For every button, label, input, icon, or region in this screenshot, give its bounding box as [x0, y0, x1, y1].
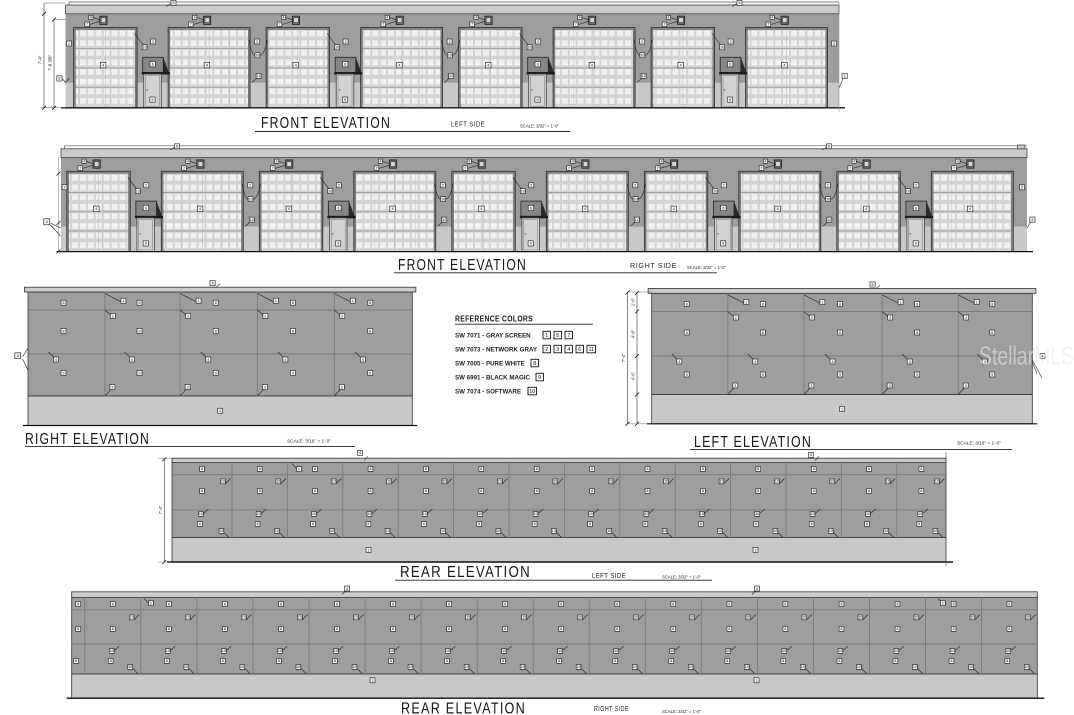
svg-text:8: 8: [166, 659, 168, 663]
svg-text:4: 4: [668, 16, 670, 20]
svg-text:8: 8: [370, 489, 372, 493]
svg-text:10: 10: [386, 529, 390, 533]
svg-text:8: 8: [110, 659, 112, 663]
svg-text:7: 7: [849, 166, 851, 170]
svg-text:10: 10: [136, 189, 140, 193]
svg-text:StellarMLS: StellarMLS: [979, 341, 1074, 371]
svg-text:8: 8: [334, 659, 336, 663]
svg-text:10: 10: [886, 480, 890, 484]
svg-text:10: 10: [811, 512, 815, 516]
svg-text:10: 10: [502, 649, 506, 653]
svg-text:4: 4: [90, 16, 92, 20]
svg-text:4: 4: [102, 63, 104, 67]
svg-text:10: 10: [884, 529, 888, 533]
svg-text:2: 2: [46, 220, 48, 224]
svg-text:4: 4: [567, 347, 570, 353]
svg-text:4: 4: [771, 16, 773, 20]
svg-text:1: 1: [219, 409, 221, 413]
svg-text:8: 8: [894, 659, 896, 663]
svg-text:9: 9: [292, 371, 294, 375]
svg-text:8: 8: [916, 331, 918, 335]
svg-text:8: 8: [139, 301, 141, 305]
svg-text:10: 10: [913, 665, 917, 669]
svg-text:8: 8: [448, 627, 450, 631]
svg-text:8: 8: [686, 302, 688, 306]
svg-text:10: 10: [644, 512, 648, 516]
svg-text:6: 6: [337, 206, 339, 210]
svg-text:2: 2: [530, 184, 532, 188]
svg-text:10: 10: [755, 512, 759, 516]
svg-text:SCALE: 3/32" = 1'-0": SCALE: 3/32" = 1'-0": [520, 124, 559, 129]
svg-text:1: 1: [372, 679, 374, 683]
svg-text:10: 10: [390, 649, 394, 653]
svg-text:6: 6: [915, 206, 917, 210]
svg-text:10: 10: [184, 665, 188, 669]
svg-text:10: 10: [773, 529, 777, 533]
svg-text:4: 4: [362, 358, 364, 362]
svg-text:7: 7: [464, 166, 466, 170]
svg-text:REAR ELEVATION: REAR ELEVATION: [400, 564, 531, 581]
svg-text:10: 10: [577, 665, 581, 669]
svg-text:7: 7: [664, 23, 666, 27]
svg-text:2: 2: [68, 42, 70, 46]
svg-text:8: 8: [897, 603, 899, 607]
svg-text:10: 10: [726, 649, 730, 653]
svg-text:8: 8: [312, 522, 314, 526]
svg-text:10: 10: [700, 512, 704, 516]
svg-text:4: 4: [468, 160, 470, 164]
svg-text:1: 1: [841, 407, 843, 411]
svg-text:2: 2: [249, 184, 251, 188]
svg-text:2: 2: [1021, 186, 1023, 190]
svg-text:8: 8: [425, 467, 427, 471]
svg-text:10: 10: [894, 649, 898, 653]
svg-text:3: 3: [810, 384, 812, 388]
svg-text:10: 10: [522, 616, 526, 620]
svg-text:10: 10: [529, 389, 535, 395]
svg-text:8: 8: [866, 522, 868, 526]
svg-text:10: 10: [387, 480, 391, 484]
svg-text:10: 10: [589, 512, 593, 516]
svg-text:5: 5: [173, 1, 175, 5]
svg-text:5: 5: [556, 333, 559, 339]
svg-text:8: 8: [369, 301, 371, 305]
svg-text:8: 8: [478, 522, 480, 526]
svg-text:10: 10: [906, 189, 910, 193]
svg-text:12: 12: [442, 218, 446, 222]
svg-text:4: 4: [206, 63, 208, 67]
svg-text:7: 7: [568, 166, 570, 170]
svg-text:6: 6: [722, 206, 724, 210]
svg-text:8: 8: [199, 522, 201, 526]
svg-text:10: 10: [664, 480, 668, 484]
svg-text:9: 9: [916, 373, 918, 377]
svg-text:9: 9: [839, 373, 841, 377]
svg-text:8: 8: [480, 467, 482, 471]
svg-text:10: 10: [918, 512, 922, 516]
svg-text:9: 9: [152, 98, 154, 102]
svg-text:10: 10: [633, 665, 637, 669]
svg-text:8: 8: [757, 467, 759, 471]
svg-text:4: 4: [832, 360, 834, 364]
svg-text:8: 8: [686, 331, 688, 335]
svg-text:5: 5: [212, 282, 214, 286]
svg-text:10: 10: [690, 616, 694, 620]
svg-text:8: 8: [259, 489, 261, 493]
svg-text:1: 1: [976, 300, 978, 304]
svg-text:7: 7: [272, 166, 274, 170]
svg-text:8: 8: [75, 659, 77, 663]
svg-text:10: 10: [143, 46, 147, 50]
svg-text:LEFT SIDE: LEFT SIDE: [451, 120, 485, 129]
svg-text:2: 2: [345, 40, 347, 44]
svg-text:4: 4: [346, 587, 348, 591]
svg-text:10: 10: [446, 649, 450, 653]
svg-text:8: 8: [702, 467, 704, 471]
svg-text:9: 9: [729, 98, 731, 102]
svg-text:10: 10: [933, 529, 937, 533]
svg-text:4: 4: [386, 16, 388, 20]
svg-text:10: 10: [951, 649, 955, 653]
svg-text:4: 4: [398, 63, 400, 67]
svg-text:2: 2: [641, 40, 643, 44]
svg-text:8: 8: [614, 659, 616, 663]
svg-text:8: 8: [616, 603, 618, 607]
svg-text:8: 8: [700, 522, 702, 526]
svg-text:8: 8: [533, 361, 536, 367]
svg-text:RIGHT SIDE: RIGHT SIDE: [630, 261, 677, 270]
svg-text:4: 4: [673, 207, 675, 211]
svg-text:8: 8: [784, 603, 786, 607]
svg-text:9: 9: [63, 371, 65, 375]
svg-text:8: 8: [314, 467, 316, 471]
svg-text:4: 4: [199, 207, 201, 211]
svg-text:10: 10: [330, 529, 334, 533]
svg-text:4: 4: [680, 63, 682, 67]
svg-text:8: 8: [702, 489, 704, 493]
svg-text:4: 4: [756, 587, 758, 591]
svg-text:8: 8: [390, 659, 392, 663]
svg-text:4: 4: [95, 207, 97, 211]
svg-text:4: 4: [380, 160, 382, 164]
svg-text:7'-4": 7'-4": [621, 353, 626, 362]
svg-text:8: 8: [336, 627, 338, 631]
svg-text:3: 3: [187, 385, 189, 389]
svg-text:10: 10: [578, 616, 582, 620]
svg-text:1'-6": 1'-6": [631, 297, 636, 306]
svg-text:9: 9: [538, 375, 541, 381]
svg-text:3: 3: [264, 385, 266, 389]
svg-text:8: 8: [670, 659, 672, 663]
svg-text:8: 8: [504, 603, 506, 607]
svg-text:8: 8: [589, 522, 591, 526]
svg-text:12: 12: [449, 74, 453, 78]
svg-text:3: 3: [965, 384, 967, 388]
svg-text:7'-4": 7'-4": [38, 55, 43, 64]
svg-text:2: 2: [442, 184, 444, 188]
svg-text:4: 4: [187, 160, 189, 164]
svg-text:9: 9: [139, 371, 141, 375]
svg-text:2: 2: [723, 184, 725, 188]
svg-text:7: 7: [953, 166, 955, 170]
svg-text:10: 10: [521, 189, 525, 193]
svg-text:REFERENCE COLORS: REFERENCE COLORS: [455, 315, 533, 324]
svg-text:SW 7005 - PURE WHITE: SW 7005 - PURE WHITE: [455, 361, 525, 368]
svg-text:8: 8: [644, 522, 646, 526]
svg-text:8: 8: [392, 603, 394, 607]
svg-text:10: 10: [352, 665, 356, 669]
svg-text:10: 10: [745, 665, 749, 669]
svg-text:9: 9: [991, 373, 993, 377]
svg-text:8: 8: [224, 603, 226, 607]
svg-text:1: 1: [821, 300, 823, 304]
svg-text:12: 12: [257, 74, 261, 78]
svg-text:SCALE: 3/32" = 1'-0": SCALE: 3/32" = 1'-0": [662, 709, 701, 714]
svg-text:8: 8: [222, 659, 224, 663]
svg-text:5: 5: [739, 1, 741, 5]
svg-text:8: 8: [369, 329, 371, 333]
svg-text:1: 1: [150, 602, 152, 606]
svg-text:8: 8: [1008, 603, 1010, 607]
svg-text:SW 7074 - SOFTWARE: SW 7074 - SOFTWARE: [455, 389, 521, 396]
svg-text:8: 8: [762, 331, 764, 335]
svg-text:9: 9: [686, 373, 688, 377]
svg-text:8: 8: [336, 603, 338, 607]
svg-text:4: 4: [853, 160, 855, 164]
svg-text:8: 8: [112, 627, 114, 631]
svg-text:7: 7: [575, 23, 577, 27]
svg-text:10: 10: [713, 189, 717, 193]
svg-text:5: 5: [872, 283, 874, 287]
svg-text:4: 4: [591, 63, 593, 67]
svg-text:7: 7: [657, 166, 659, 170]
svg-text:10: 10: [199, 512, 203, 516]
svg-text:8: 8: [813, 467, 815, 471]
svg-text:SCALE: 3/32" = 1'-0": SCALE: 3/32" = 1'-0": [687, 265, 726, 270]
svg-text:10: 10: [614, 649, 618, 653]
svg-text:2: 2: [537, 40, 539, 44]
svg-text:10: 10: [312, 512, 316, 516]
svg-text:8: 8: [918, 522, 920, 526]
svg-text:4: 4: [909, 360, 911, 364]
svg-text:1: 1: [844, 74, 846, 78]
svg-text:8: 8: [224, 627, 226, 631]
svg-text:7: 7: [79, 166, 81, 170]
svg-text:9: 9: [722, 242, 724, 246]
svg-text:8: 8: [504, 627, 506, 631]
svg-text:10: 10: [276, 480, 280, 484]
svg-text:7: 7: [471, 23, 473, 27]
svg-text:10: 10: [1006, 649, 1010, 653]
svg-text:10: 10: [332, 480, 336, 484]
svg-text:SW 6991 - BLACK MAGIC: SW 6991 - BLACK MAGIC: [455, 375, 530, 382]
svg-text:8: 8: [591, 467, 593, 471]
svg-text:8: 8: [839, 302, 841, 306]
svg-text:2: 2: [338, 184, 340, 188]
svg-text:3: 3: [889, 384, 891, 388]
svg-text:10: 10: [478, 512, 482, 516]
svg-text:8: 8: [201, 467, 203, 471]
svg-text:10: 10: [354, 616, 358, 620]
svg-text:8: 8: [77, 627, 79, 631]
svg-text:10: 10: [410, 616, 414, 620]
svg-text:8: 8: [1008, 627, 1010, 631]
svg-text:7: 7: [190, 23, 192, 27]
svg-text:10: 10: [367, 512, 371, 516]
svg-text:2: 2: [545, 347, 548, 353]
svg-text:10: 10: [242, 616, 246, 620]
svg-text:10: 10: [335, 46, 339, 50]
svg-text:RIGHT ELEVATION: RIGHT ELEVATION: [25, 431, 150, 448]
svg-text:8: 8: [502, 659, 504, 663]
svg-text:10: 10: [275, 529, 279, 533]
svg-text:10: 10: [829, 529, 833, 533]
svg-text:8: 8: [370, 467, 372, 471]
svg-text:10: 10: [866, 512, 870, 516]
svg-text:8: 8: [280, 627, 282, 631]
svg-text:4: 4: [283, 16, 285, 20]
svg-text:2: 2: [256, 40, 258, 44]
svg-text:10: 10: [718, 529, 722, 533]
svg-text:6: 6: [537, 63, 539, 67]
svg-text:4: 4: [475, 16, 477, 20]
svg-text:9: 9: [762, 373, 764, 377]
svg-text:9: 9: [915, 242, 917, 246]
svg-text:8: 8: [838, 659, 840, 663]
svg-text:10: 10: [496, 529, 500, 533]
svg-text:8: 8: [616, 627, 618, 631]
svg-text:3: 3: [734, 384, 736, 388]
svg-text:9: 9: [537, 98, 539, 102]
svg-text:4: 4: [678, 360, 680, 364]
svg-text:8: 8: [480, 489, 482, 493]
svg-text:9: 9: [215, 371, 217, 375]
svg-text:10: 10: [498, 480, 502, 484]
svg-text:10: 10: [553, 480, 557, 484]
svg-text:4: 4: [865, 207, 867, 211]
svg-text:2: 2: [187, 314, 189, 318]
svg-text:1: 1: [368, 548, 370, 552]
svg-text:2: 2: [730, 40, 732, 44]
svg-text:2: 2: [735, 316, 737, 320]
svg-text:10: 10: [466, 616, 470, 620]
svg-text:8: 8: [314, 489, 316, 493]
svg-text:6: 6: [729, 63, 731, 67]
svg-text:10: 10: [634, 197, 638, 201]
svg-text:10: 10: [1026, 616, 1030, 620]
svg-text:8: 8: [280, 603, 282, 607]
svg-text:4: 4: [207, 358, 209, 362]
svg-text:SW 7071 - GRAY SCREEN: SW 7071 - GRAY SCREEN: [455, 333, 531, 340]
svg-text:4: 4: [55, 358, 57, 362]
svg-text:6: 6: [344, 63, 346, 67]
svg-text:9: 9: [145, 242, 147, 246]
svg-text:9: 9: [369, 371, 371, 375]
svg-text:FRONT ELEVATION: FRONT ELEVATION: [261, 115, 391, 132]
svg-text:2: 2: [889, 316, 891, 320]
svg-text:1: 1: [298, 467, 300, 471]
svg-text:10: 10: [222, 649, 226, 653]
svg-text:10: 10: [423, 512, 427, 516]
svg-text:3: 3: [556, 347, 559, 353]
svg-text:SCALE: 3/32" = 1'-0": SCALE: 3/32" = 1'-0": [662, 575, 701, 580]
svg-text:RIGHT SIDE: RIGHT SIDE: [594, 704, 629, 713]
svg-text:4: 4: [765, 160, 767, 164]
svg-text:8: 8: [536, 467, 538, 471]
svg-text:7: 7: [382, 23, 384, 27]
svg-text:10: 10: [720, 480, 724, 484]
svg-text:8: 8: [647, 489, 649, 493]
svg-text:7: 7: [86, 23, 88, 27]
svg-text:10: 10: [935, 480, 939, 484]
svg-text:8: 8: [448, 603, 450, 607]
svg-text:10: 10: [801, 665, 805, 669]
svg-text:10: 10: [257, 512, 261, 516]
svg-text:8: 8: [278, 659, 280, 663]
svg-text:8: 8: [672, 627, 674, 631]
svg-text:8: 8: [755, 522, 757, 526]
svg-text:10: 10: [858, 616, 862, 620]
svg-text:4: 4: [276, 160, 278, 164]
svg-text:2: 2: [449, 40, 451, 44]
svg-text:2: 2: [264, 314, 266, 318]
svg-text:10: 10: [298, 616, 302, 620]
svg-text:8: 8: [215, 329, 217, 333]
svg-text:10: 10: [441, 529, 445, 533]
svg-text:LEFT ELEVATION: LEFT ELEVATION: [694, 434, 812, 451]
svg-text:1: 1: [198, 299, 200, 303]
svg-text:6: 6: [152, 63, 154, 67]
svg-text:10: 10: [441, 197, 445, 201]
svg-text:10: 10: [534, 512, 538, 516]
svg-text:REAR ELEVATION: REAR ELEVATION: [401, 700, 526, 715]
svg-text:10: 10: [128, 665, 132, 669]
svg-text:4: 4: [572, 160, 574, 164]
svg-text:4: 4: [480, 207, 482, 211]
svg-text:7'-4": 7'-4": [158, 505, 163, 514]
svg-text:10: 10: [296, 665, 300, 669]
svg-text:8: 8: [647, 467, 649, 471]
svg-text:8: 8: [868, 489, 870, 493]
svg-text:10: 10: [607, 529, 611, 533]
svg-text:8: 8: [168, 603, 170, 607]
svg-text:8: 8: [292, 329, 294, 333]
svg-text:2: 2: [634, 184, 636, 188]
svg-text:8: 8: [916, 302, 918, 306]
svg-text:7'-8 3/8": 7'-8 3/8": [48, 55, 53, 72]
svg-text:1: 1: [745, 300, 747, 304]
svg-text:8: 8: [920, 467, 922, 471]
svg-text:5: 5: [828, 145, 830, 149]
svg-text:3: 3: [17, 354, 19, 358]
svg-text:9: 9: [344, 98, 346, 102]
svg-text:10: 10: [278, 649, 282, 653]
svg-text:10: 10: [857, 665, 861, 669]
svg-text:10: 10: [826, 197, 830, 201]
svg-text:8: 8: [259, 467, 261, 471]
svg-text:8: 8: [728, 603, 730, 607]
svg-text:8: 8: [811, 522, 813, 526]
svg-text:11: 11: [588, 347, 594, 353]
svg-text:3: 3: [58, 77, 60, 81]
svg-text:4: 4: [754, 360, 756, 364]
svg-text:8: 8: [112, 603, 114, 607]
svg-text:10: 10: [830, 480, 834, 484]
svg-text:10: 10: [746, 616, 750, 620]
svg-text:3: 3: [341, 385, 343, 389]
svg-text:10: 10: [110, 649, 114, 653]
svg-text:4: 4: [295, 63, 297, 67]
